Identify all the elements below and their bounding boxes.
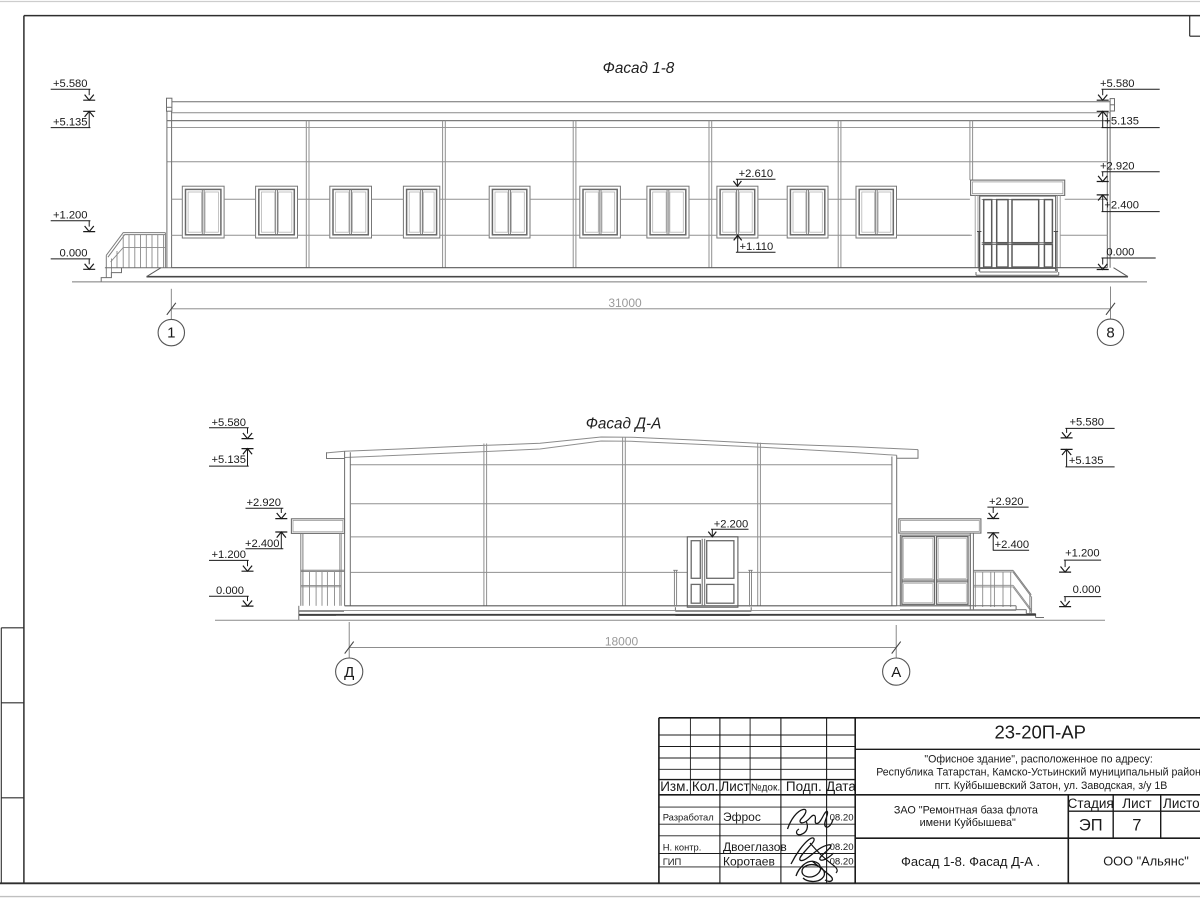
svg-text:18000: 18000: [605, 634, 639, 648]
svg-text:7: 7: [1132, 816, 1141, 834]
svg-text:Двоеглазов: Двоеглазов: [723, 840, 787, 854]
svg-text:Кол.: Кол.: [692, 779, 719, 794]
svg-text:+2.200: +2.200: [714, 518, 749, 530]
svg-text:Стадия: Стадия: [1068, 796, 1114, 811]
svg-text:+5.135: +5.135: [53, 116, 88, 128]
svg-text:ООО "Альянс": ООО "Альянс": [1103, 853, 1189, 868]
svg-text:пгт. Куйбышевский Затон, ул. З: пгт. Куйбышевский Затон, ул. Заводская, …: [935, 780, 1168, 792]
svg-text:+5.580: +5.580: [211, 417, 246, 429]
svg-text:+1.200: +1.200: [1065, 548, 1100, 560]
svg-text:08.20: 08.20: [830, 812, 854, 823]
svg-text:0.000: 0.000: [216, 585, 244, 597]
svg-text:Разработал: Разработал: [663, 812, 714, 823]
svg-text:Дата: Дата: [826, 779, 856, 794]
svg-text:А: А: [891, 664, 901, 681]
svg-text:0.000: 0.000: [1106, 247, 1134, 259]
svg-text:08.20: 08.20: [830, 842, 854, 853]
svg-text:+1.200: +1.200: [53, 210, 88, 222]
svg-text:23-20П-АР: 23-20П-АР: [994, 722, 1085, 743]
svg-text:№док.: №док.: [751, 783, 780, 794]
svg-text:+2.400: +2.400: [995, 539, 1030, 551]
svg-text:+5.135: +5.135: [1104, 116, 1139, 128]
svg-text:+5.580: +5.580: [1070, 417, 1105, 429]
svg-text:+1.110: +1.110: [740, 241, 774, 253]
svg-text:+5.135: +5.135: [211, 454, 246, 466]
svg-text:8: 8: [1106, 324, 1114, 341]
svg-text:Д: Д: [344, 664, 354, 681]
svg-text:0.000: 0.000: [1073, 584, 1101, 596]
svg-text:Эфрос: Эфрос: [723, 810, 761, 824]
svg-text:0.000: 0.000: [60, 248, 88, 260]
svg-text:Фасад 1-8: Фасад 1-8: [603, 60, 675, 77]
svg-text:Листов: Листов: [1163, 796, 1200, 811]
svg-text:"Офисное здание", расположенно: "Офисное здание", расположенное по адрес…: [924, 754, 1152, 766]
svg-text:ЭП: ЭП: [1079, 816, 1103, 834]
svg-text:Изм.: Изм.: [660, 779, 689, 794]
svg-text:31000: 31000: [608, 296, 642, 310]
svg-text:имени Куйбышева": имени Куйбышева": [920, 817, 1016, 829]
svg-text:+1.200: +1.200: [211, 549, 246, 561]
svg-text:ЗАО "Ремонтная база флота: ЗАО "Ремонтная база флота: [894, 804, 1038, 816]
svg-text:+2.610: +2.610: [739, 168, 774, 180]
svg-text:+2.920: +2.920: [1100, 160, 1135, 172]
svg-text:+5.580: +5.580: [1100, 78, 1135, 90]
svg-text:Лист: Лист: [1122, 796, 1151, 811]
svg-text:Республика Татарстан, Камско-У: Республика Татарстан, Камско-Устьинский …: [876, 767, 1200, 779]
svg-text:Фасад Д-А: Фасад Д-А: [586, 415, 662, 432]
svg-text:+2.920: +2.920: [989, 496, 1024, 508]
svg-text:Фасад 1-8. Фасад Д-А .: Фасад 1-8. Фасад Д-А .: [901, 854, 1040, 869]
svg-text:+2.400: +2.400: [1104, 200, 1139, 212]
svg-text:Лист: Лист: [720, 779, 749, 794]
svg-text:+5.135: +5.135: [1069, 455, 1104, 467]
svg-text:Подп.: Подп.: [786, 779, 822, 794]
svg-text:Коротаев: Коротаев: [723, 855, 775, 869]
svg-text:ГИП: ГИП: [663, 856, 682, 867]
svg-text:+5.580: +5.580: [53, 78, 88, 90]
svg-text:+2.920: +2.920: [246, 497, 281, 509]
svg-text:Н. контр.: Н. контр.: [663, 841, 702, 852]
svg-text:1: 1: [167, 325, 175, 342]
